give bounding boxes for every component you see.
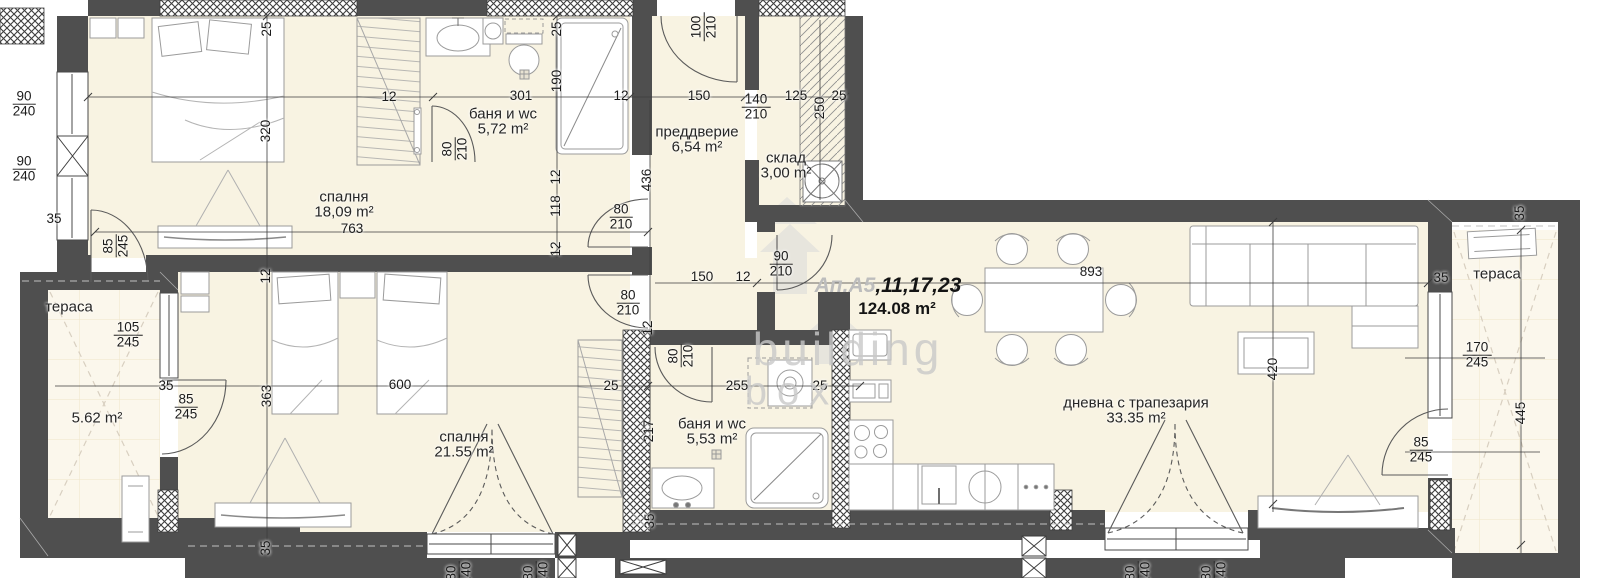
dimension-label: 301 xyxy=(510,89,533,103)
dimension-label: 12 xyxy=(641,320,655,335)
opening-size-label: 80210 xyxy=(441,138,470,161)
dimension-label: 600 xyxy=(389,378,412,392)
apartment-title-prefix: Ап.А5 xyxy=(815,274,876,297)
dimension-label: 35 xyxy=(46,212,61,226)
labels-layer: спалня18,09 m²баня и wc5,72 m²преддверие… xyxy=(0,0,1600,578)
dimension-label: 150 xyxy=(691,270,714,284)
dimension-label: 217 xyxy=(642,420,656,443)
dimension-label: 35 xyxy=(1433,271,1448,285)
apartment-title-numbers: ,11,17,23 xyxy=(875,274,961,297)
opening-size-label: 80140 xyxy=(445,562,474,578)
room-label-terrace-left: тераса xyxy=(45,299,93,314)
dimension-label: 445 xyxy=(1514,402,1528,425)
dimension-label: 436 xyxy=(640,169,654,192)
opening-size-label: 140210 xyxy=(742,93,771,122)
opening-size-label: 105245 xyxy=(114,321,143,350)
opening-size-label: 80210 xyxy=(617,289,640,318)
opening-size-label: 90240 xyxy=(13,90,36,119)
opening-size-label: 80210 xyxy=(610,203,633,232)
opening-size-label: 85245 xyxy=(102,235,131,258)
dimension-label: 763 xyxy=(341,222,364,236)
dimension-label: 125 xyxy=(785,89,808,103)
opening-size-label: 85245 xyxy=(1410,436,1433,465)
opening-size-label: 90240 xyxy=(13,155,36,184)
room-label-storage: склад3,00 m² xyxy=(761,151,812,182)
opening-size-label: 100210 xyxy=(690,13,719,42)
opening-size-label: 80140 xyxy=(1124,562,1153,578)
dimension-label: 35 xyxy=(1513,205,1527,220)
dimension-label: 12 xyxy=(381,90,396,104)
opening-size-label: 80140 xyxy=(522,562,551,578)
dimension-label: 320 xyxy=(259,120,273,143)
dimension-label: 150 xyxy=(688,89,711,103)
dimension-label: 12 xyxy=(259,268,273,283)
watermark-text-2: box xyxy=(745,370,840,415)
room-area-terrace-left: 5.62 m² xyxy=(72,410,123,425)
dimension-label: 250 xyxy=(813,97,827,120)
opening-size-label: 90210 xyxy=(770,250,793,279)
room-label-bathroom-2: баня и wc5,53 m² xyxy=(678,417,746,448)
dimension-label: 420 xyxy=(1266,358,1280,381)
room-label-terrace-right: тераса xyxy=(1473,266,1521,281)
room-label-bedroom-2: спалня21.55 m² xyxy=(434,430,493,461)
dimension-label: 12 xyxy=(613,89,628,103)
dimension-label: 190 xyxy=(550,70,564,93)
dimension-label: 12 xyxy=(549,241,563,256)
dimension-label: 12 xyxy=(735,270,750,284)
dimension-label: 118 xyxy=(549,195,563,217)
dimension-label: 25 xyxy=(831,89,846,103)
room-label-entry-hall: преддверие6,54 m² xyxy=(655,125,738,156)
floor-plan: спалня18,09 m²баня и wc5,72 m²преддверие… xyxy=(0,0,1600,578)
dimension-label: 12 xyxy=(549,169,563,184)
dimension-label: 25 xyxy=(550,21,564,36)
dimension-label: 25 xyxy=(603,379,618,393)
dimension-label: 35 xyxy=(643,513,657,528)
apartment-title: Ап.А5,11,17,23 xyxy=(815,274,962,298)
dimension-label: 35 xyxy=(259,540,273,555)
watermark-text-1: building xyxy=(753,322,944,376)
dimension-label: 25 xyxy=(260,21,274,36)
room-label-bedroom-1: спалня18,09 m² xyxy=(314,190,373,221)
opening-size-label: 80210 xyxy=(667,345,696,368)
opening-size-label: 80140 xyxy=(1200,562,1229,578)
dimension-label: 363 xyxy=(260,385,274,408)
apartment-total-area: 124.08 m² xyxy=(858,299,936,319)
dimension-label: 35 xyxy=(158,379,173,393)
opening-size-label: 85245 xyxy=(175,393,198,422)
room-label-living-dining: дневна с трапезария33.35 m² xyxy=(1063,396,1209,427)
room-label-bathroom-1: баня и wc5,72 m² xyxy=(469,107,537,138)
dimension-label: 893 xyxy=(1080,265,1103,279)
opening-size-label: 170245 xyxy=(1463,341,1492,370)
